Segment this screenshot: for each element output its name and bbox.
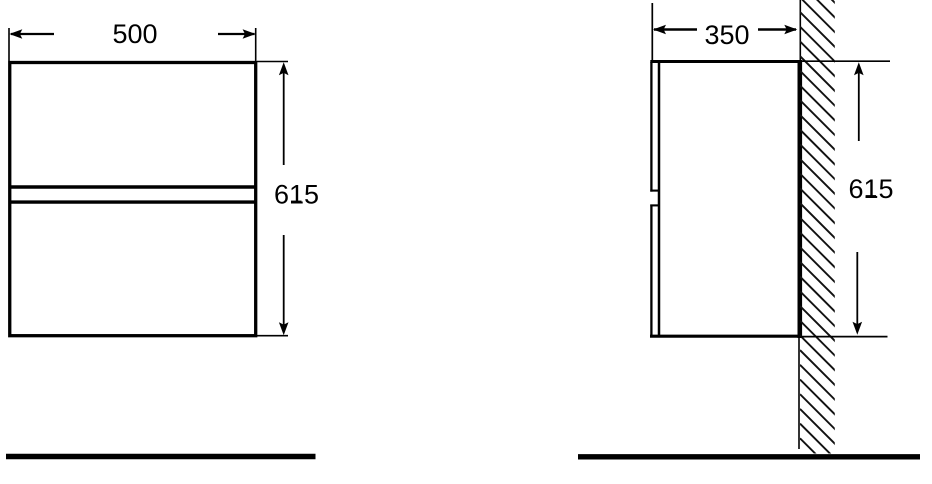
svg-text:615: 615 — [274, 180, 319, 210]
svg-text:350: 350 — [704, 20, 749, 50]
svg-text:615: 615 — [848, 174, 893, 204]
svg-text:500: 500 — [112, 19, 157, 49]
